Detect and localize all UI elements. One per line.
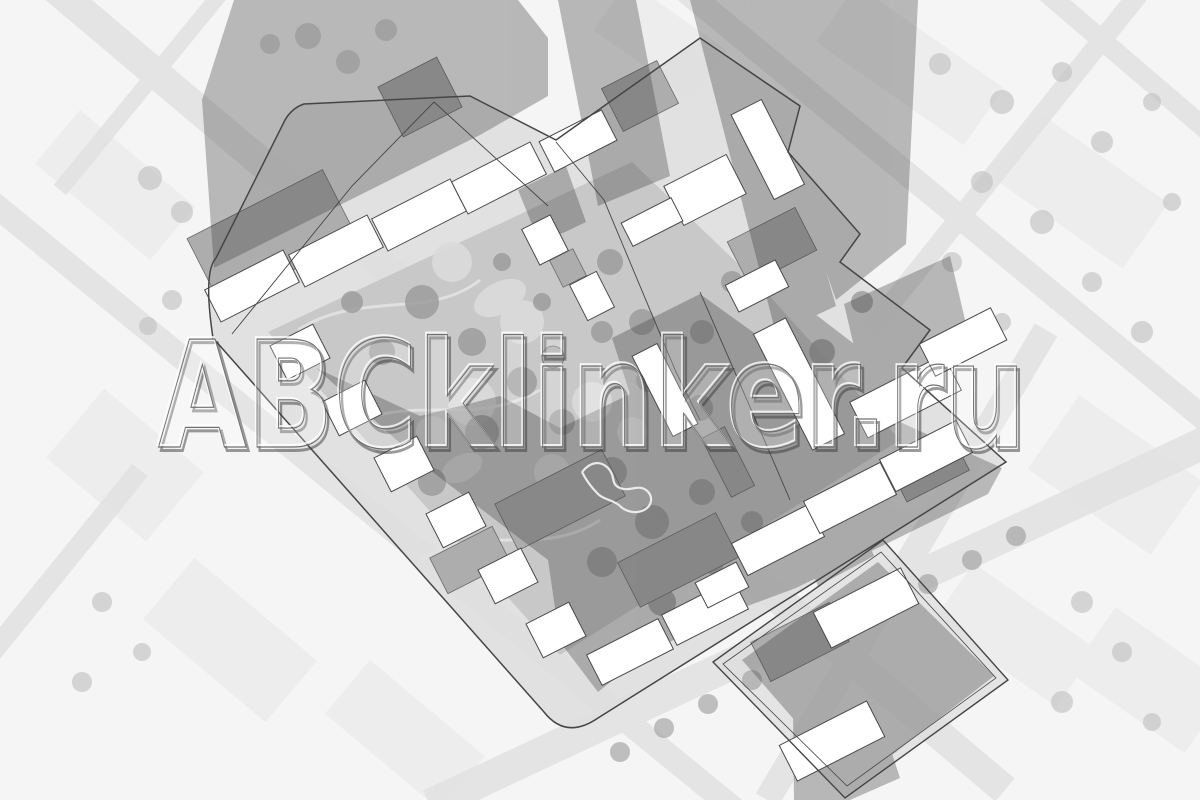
tree xyxy=(698,694,718,714)
tree xyxy=(133,643,151,661)
tree xyxy=(1082,272,1102,292)
tree xyxy=(1143,713,1161,731)
tree xyxy=(162,290,182,310)
tree xyxy=(493,253,511,271)
tree xyxy=(1143,93,1161,111)
tree xyxy=(1091,131,1113,153)
tree xyxy=(1006,526,1026,546)
tree xyxy=(1163,193,1181,211)
tree xyxy=(597,249,623,275)
tree xyxy=(139,317,157,335)
tree xyxy=(1131,321,1153,343)
tree xyxy=(72,672,92,692)
masterplan-canvas: ABCklinker.ru ABCklinker.ru ABCklinker.r… xyxy=(0,0,1200,800)
tree xyxy=(1030,210,1054,234)
tree xyxy=(929,53,951,75)
site-plan-page: ABCklinker.ru ABCklinker.ru ABCklinker.r… xyxy=(0,0,1200,800)
tree xyxy=(1071,591,1093,613)
tree xyxy=(610,742,630,762)
lawn-patch xyxy=(432,242,472,282)
watermark: ABCklinker.ru ABCklinker.ru ABCklinker.r… xyxy=(157,308,1029,486)
tree xyxy=(1052,62,1072,82)
tree xyxy=(654,718,674,738)
tree xyxy=(971,171,993,193)
tree xyxy=(171,201,193,223)
watermark-text: ABCklinker.ru xyxy=(158,310,1026,482)
tree xyxy=(990,90,1014,114)
tree xyxy=(92,592,112,612)
tree xyxy=(962,550,982,570)
tree xyxy=(1112,642,1132,662)
tree xyxy=(1051,691,1073,713)
tree xyxy=(138,166,162,190)
